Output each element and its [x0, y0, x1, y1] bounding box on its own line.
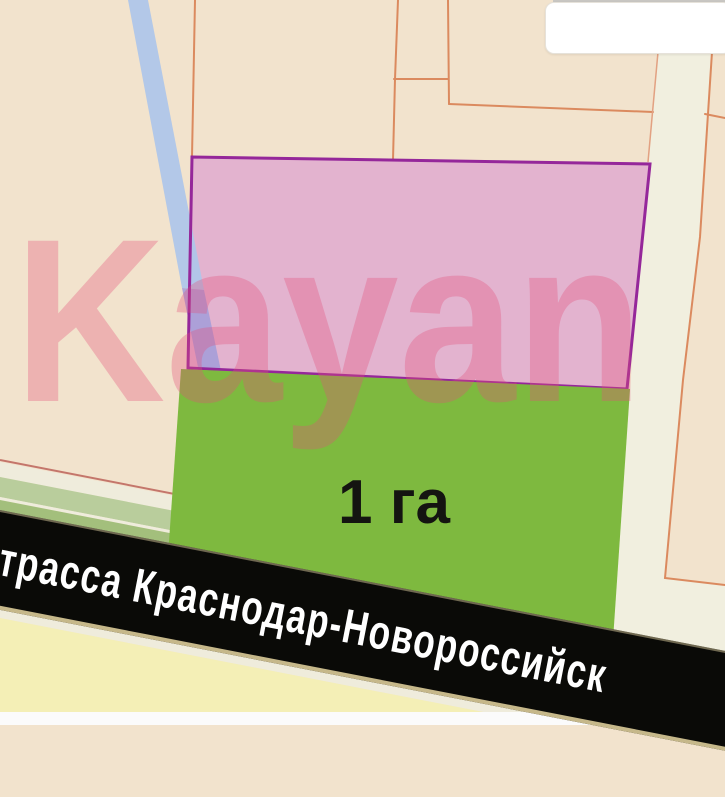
- white-info-box: [545, 2, 725, 54]
- parcel-area-label: 1 га: [338, 472, 450, 534]
- pink-parcel[interactable]: [188, 157, 650, 389]
- parcel-line-mid-3: [448, 0, 449, 104]
- map-canvas[interactable]: Kayan 1 га трасса Краснодар-Новороссийск: [0, 0, 725, 725]
